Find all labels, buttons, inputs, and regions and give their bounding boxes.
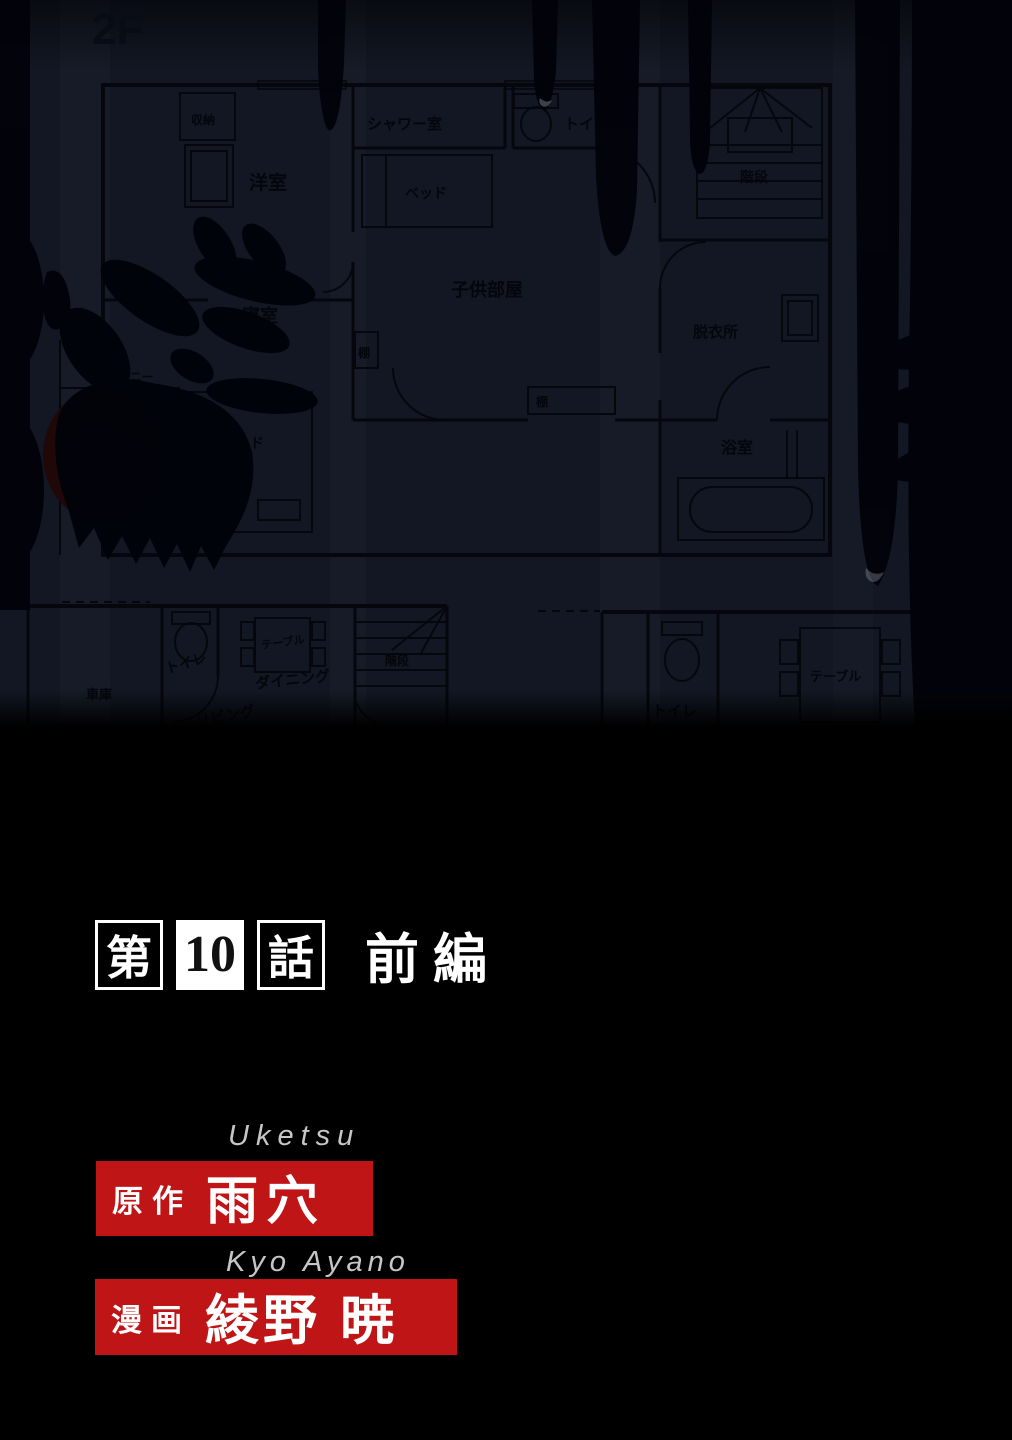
artist-name: 綾野 暁 — [205, 1276, 398, 1355]
artist-romaji: Kyo Ayano — [226, 1246, 410, 1279]
room-label-closet: 収納 — [191, 112, 215, 127]
room-label-childrens-room: 子供部屋 — [451, 279, 523, 300]
artist-role-label: 漫画 — [111, 1295, 191, 1340]
room-label-shelf-1: 棚 — [358, 345, 370, 360]
room-label-shower: シャワー室 — [367, 115, 442, 133]
artist-credit: 漫画 綾野 暁 — [95, 1279, 457, 1355]
room-label-shelf-2: 棚 — [536, 394, 548, 409]
room-label-bed-childrens: ベッド — [405, 185, 447, 201]
floor-label: 2F — [92, 5, 143, 54]
episode-part-label: 前編 — [365, 915, 501, 994]
bottom-fade — [0, 690, 1012, 727]
manga-title-page: { "page": { "floor_label": "2F", "episod… — [0, 0, 1012, 1440]
author-romaji: Uketsu — [228, 1120, 360, 1153]
author-role-label: 原作 — [112, 1176, 192, 1221]
episode-prefix-box: 第 — [95, 920, 163, 990]
author-credit: 原作 雨穴 — [96, 1161, 373, 1236]
room-label-bathroom: 浴室 — [721, 438, 753, 457]
room-label-stairs-1f: 階段 — [385, 653, 410, 668]
room-label-western-room: 洋室 — [249, 171, 287, 194]
episode-suffix-box: 話 — [257, 920, 325, 990]
author-name: 雨穴 — [206, 1159, 326, 1234]
episode-title: 第 10 話 前編 — [95, 915, 501, 994]
room-label-table-right: テーブル — [810, 669, 861, 684]
room-label-stairs-2f: 階段 — [740, 169, 768, 185]
floor-plan-scene: 2F — [0, 0, 1012, 727]
episode-number-box: 10 — [176, 920, 244, 990]
room-label-dressing-room: 脱衣所 — [693, 323, 738, 341]
